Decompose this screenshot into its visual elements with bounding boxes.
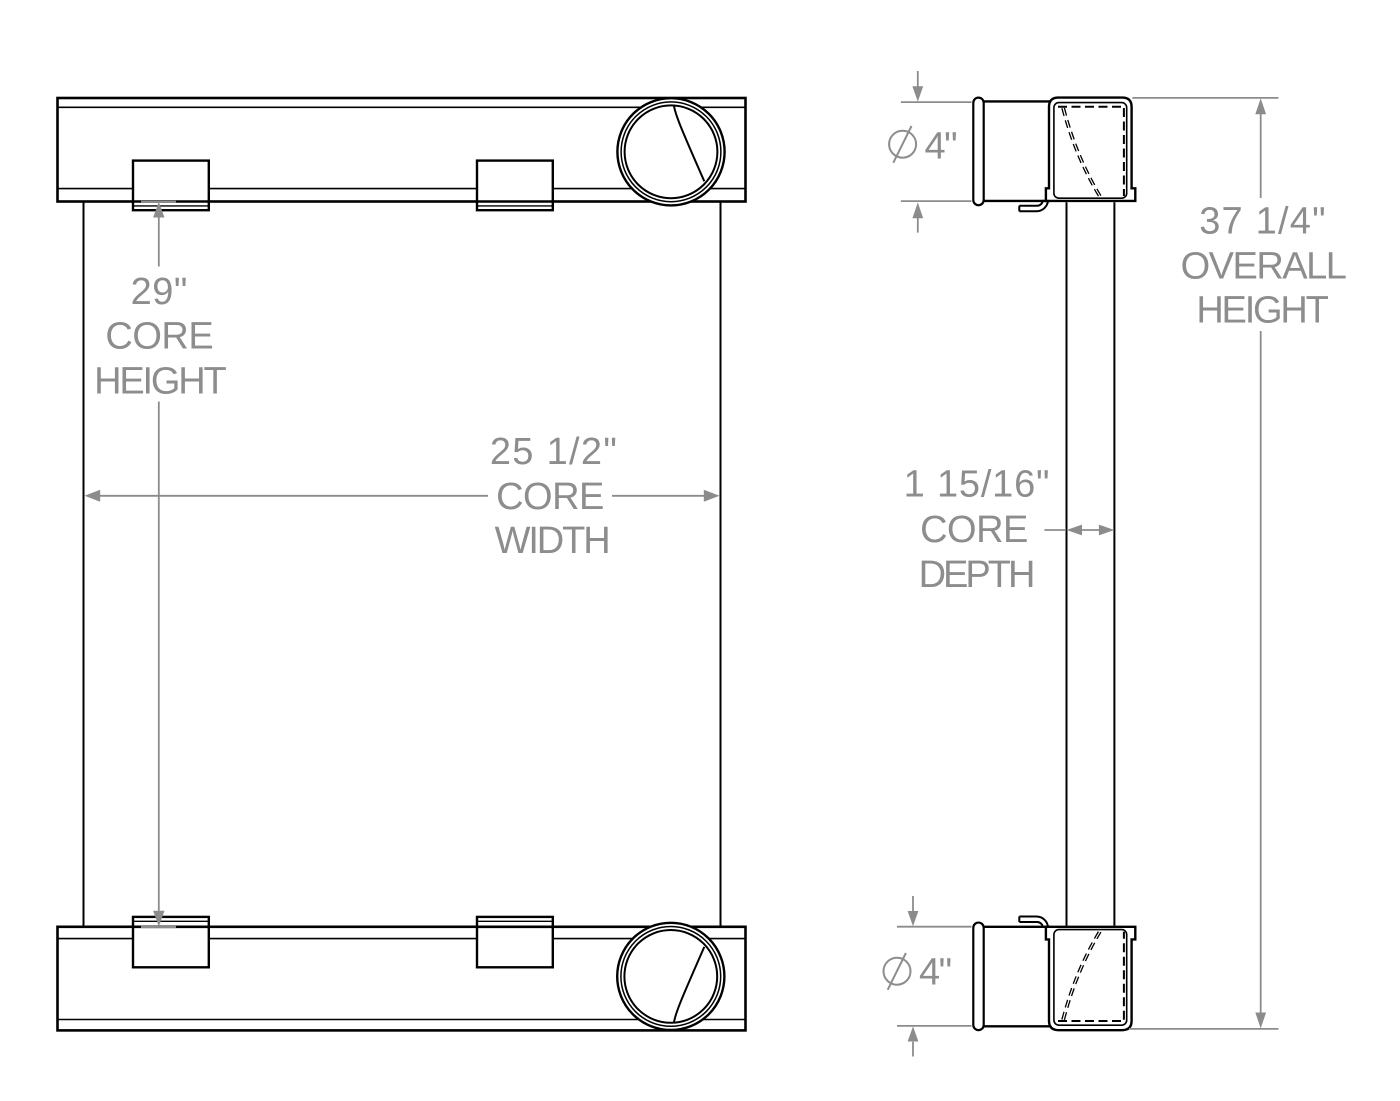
svg-text:CORE: CORE bbox=[496, 476, 604, 518]
svg-text:HEIGHT: HEIGHT bbox=[1196, 290, 1328, 332]
svg-text:CORE: CORE bbox=[105, 316, 213, 358]
svg-text:DEPTH: DEPTH bbox=[919, 554, 1033, 596]
svg-text:25 1/2": 25 1/2" bbox=[490, 431, 618, 473]
svg-text:HEIGHT: HEIGHT bbox=[94, 361, 226, 403]
svg-text:4": 4" bbox=[919, 952, 951, 994]
svg-text:4": 4" bbox=[925, 126, 957, 168]
svg-text:WIDTH: WIDTH bbox=[495, 520, 609, 562]
svg-text:37 1/4": 37 1/4" bbox=[1199, 201, 1327, 243]
svg-text:CORE: CORE bbox=[920, 509, 1028, 551]
svg-text:OVERALL: OVERALL bbox=[1181, 246, 1346, 288]
svg-text:29": 29" bbox=[131, 271, 188, 313]
svg-text:1 15/16": 1 15/16" bbox=[904, 464, 1051, 506]
